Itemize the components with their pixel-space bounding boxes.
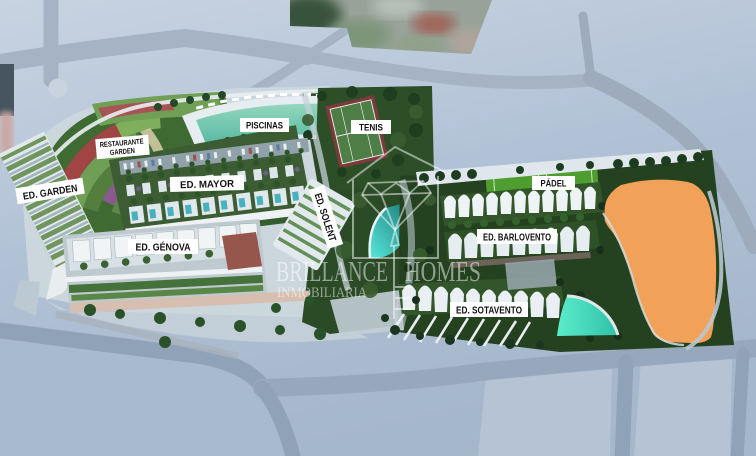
svg-text:HOMES: HOMES [405, 257, 481, 288]
svg-text:INMOBILIARIA: INMOBILIARIA [277, 285, 367, 301]
svg-text:PISCINAS: PISCINAS [246, 121, 283, 132]
svg-text:ED. BARLOVENTO: ED. BARLOVENTO [483, 233, 551, 244]
svg-text:TENIS: TENIS [359, 123, 383, 134]
svg-text:PÁDEL: PÁDEL [541, 179, 567, 190]
svg-text:ED. SOTAVENTO: ED. SOTAVENTO [456, 306, 522, 317]
svg-text:ED. GÉNOVA: ED. GÉNOVA [136, 241, 191, 254]
svg-text:BRILLANCE: BRILLANCE [276, 257, 388, 288]
svg-text:ED. MAYOR: ED. MAYOR [180, 179, 235, 191]
